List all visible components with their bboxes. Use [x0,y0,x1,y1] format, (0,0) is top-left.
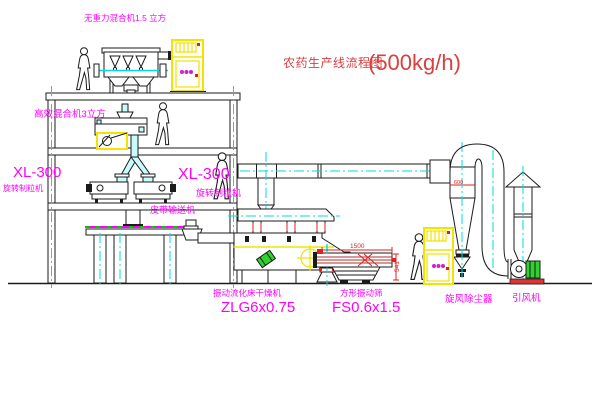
label-granulator-right: 旋转制粒机 [196,187,241,198]
label-granulator-model-left: XL-300 [13,164,61,181]
label-fluid-bed-dryer-model: ZLG6x0.75 [221,299,295,316]
gravity-free-mixer [94,48,172,93]
granulator-right [134,182,176,203]
control-cabinet-ground [424,228,453,284]
mixer-discharge-pipe [131,135,138,157]
indicator-light-icon [197,43,200,46]
belt-conveyor [85,227,192,285]
person-level2 [156,103,169,145]
dim-sieve-height: 541 [394,261,401,272]
induced-draft-fan [510,261,544,285]
label-fan: 引风机 [512,292,541,304]
label-granulator-left: 旋转制粒机 [3,183,43,193]
discharge-chute [123,210,143,228]
fluid-bed-dryer [228,209,352,286]
fan-base [510,279,544,284]
label-vibrating-sieve-model: FS0.6x1.5 [332,299,400,316]
indicator-light-icon [447,231,450,234]
label-vibrating-sieve: 方形振动筛 [340,288,383,298]
granulator-left [86,182,128,203]
dim-cyclone-inlet: 600 [454,180,463,186]
label-fluid-bed-dryer: 振动流化床干燥机 [213,288,282,298]
label-high-efficiency-mixer: 高效混合机3立方 [34,108,106,120]
control-cabinet-top [170,40,206,92]
person-level1 [77,48,90,90]
dim-sieve-length: 1500 [350,243,365,250]
flow-diagram-canvas: 农药生产线流程图 (500kg/h) 无重力混合机1.5 立方 高效混合机3立方… [0,0,600,403]
label-belt-conveyor: 皮带输送机 [150,204,195,215]
label-cyclone: 旋风除尘器 [445,293,493,305]
page-title-capacity: (500kg/h) [368,50,461,75]
label-granulator-model-right: XL-300 [178,166,230,183]
y-chute [115,157,155,182]
diagram-svg: 农药生产线流程图 (500kg/h) 无重力混合机1.5 立方 高效混合机3立方… [0,0,600,403]
label-gravity-free-mixer: 无重力混合机1.5 立方 [84,13,166,23]
